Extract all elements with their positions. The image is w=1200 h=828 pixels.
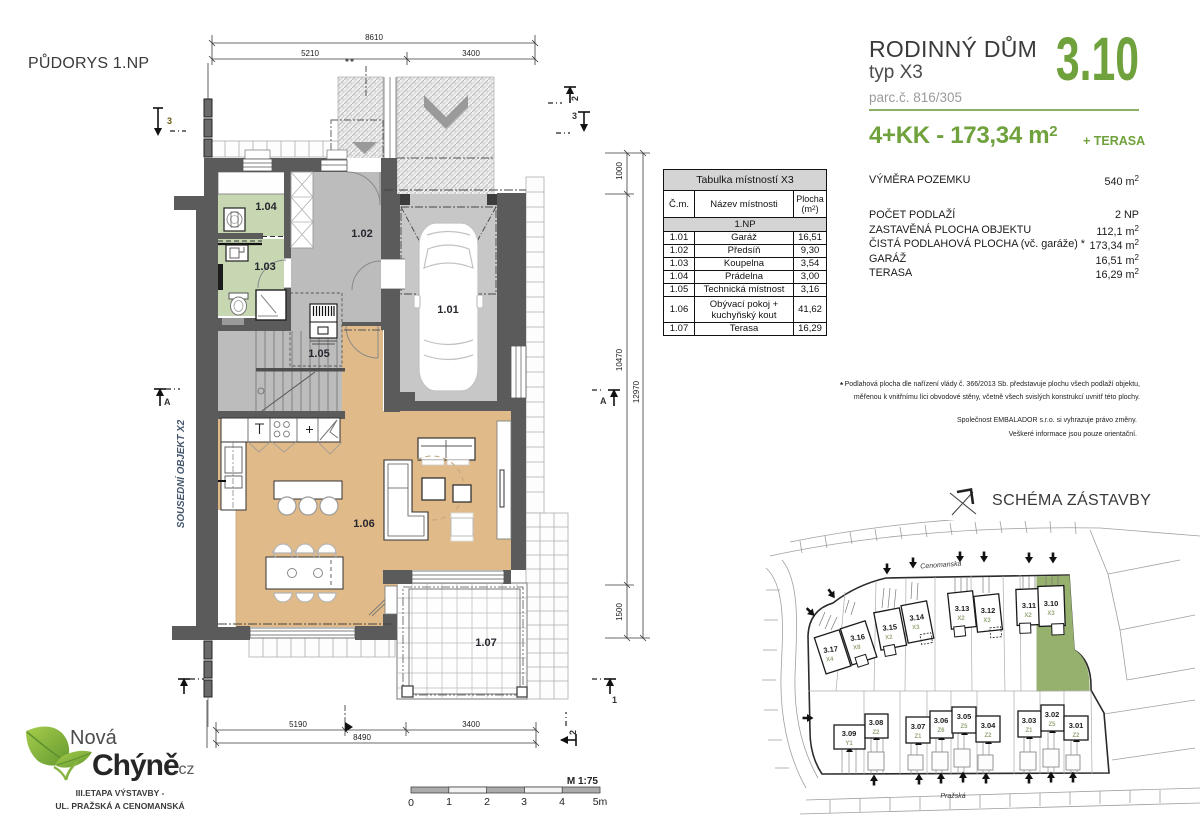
- svg-text:3.02: 3.02: [1045, 710, 1060, 719]
- svg-text:3.09: 3.09: [842, 729, 857, 738]
- svg-text:2: 2: [484, 796, 490, 808]
- svg-text:X2: X2: [1024, 613, 1032, 619]
- svg-text:8490: 8490: [353, 733, 371, 742]
- svg-text:Z2: Z2: [872, 730, 880, 736]
- svg-text:M 1:75: M 1:75: [567, 776, 599, 787]
- svg-text:3: 3: [167, 116, 172, 126]
- svg-text:Z2: Z2: [1072, 733, 1080, 739]
- svg-text:3.07: 3.07: [911, 722, 926, 731]
- svg-text:Z2: Z2: [984, 733, 992, 739]
- svg-text:3.04: 3.04: [981, 721, 996, 730]
- svg-text:SOUSEDNÍ OBJEKT X2: SOUSEDNÍ OBJEKT X2: [176, 419, 187, 528]
- svg-text:3.06: 3.06: [934, 716, 949, 725]
- svg-text:Chýně: Chýně: [92, 749, 179, 782]
- svg-text:1000: 1000: [615, 162, 624, 180]
- svg-text:3.03: 3.03: [1022, 716, 1037, 725]
- svg-text:3.10: 3.10: [1044, 599, 1059, 608]
- svg-text:1: 1: [446, 796, 452, 808]
- svg-text:3: 3: [572, 111, 577, 121]
- svg-text:Z1: Z1: [914, 734, 922, 740]
- svg-text:1.04: 1.04: [255, 201, 277, 213]
- svg-text:X2: X2: [957, 616, 965, 622]
- svg-text:Z5: Z5: [1048, 722, 1056, 728]
- svg-text:3.05: 3.05: [957, 712, 972, 721]
- svg-text:X3: X3: [1047, 611, 1055, 617]
- svg-text:3.12: 3.12: [981, 606, 996, 615]
- svg-text:Z5: Z5: [960, 724, 968, 730]
- svg-text:A: A: [164, 397, 171, 407]
- svg-text:3.14: 3.14: [909, 612, 925, 623]
- svg-text:3.13: 3.13: [955, 604, 970, 613]
- svg-text:Pražská: Pražská: [940, 793, 965, 800]
- svg-text:1.05: 1.05: [308, 348, 329, 360]
- svg-text:2: 2: [570, 96, 580, 101]
- svg-text:5210: 5210: [301, 49, 319, 58]
- svg-text:1.03: 1.03: [254, 261, 275, 273]
- svg-text:8610: 8610: [365, 33, 383, 42]
- svg-text:0: 0: [408, 797, 414, 809]
- svg-text:A: A: [600, 396, 607, 406]
- svg-text:1: 1: [612, 695, 617, 705]
- svg-text:Y1: Y1: [845, 741, 853, 747]
- svg-text:12970: 12970: [632, 380, 641, 403]
- svg-text:10470: 10470: [615, 348, 624, 371]
- svg-text:4: 4: [559, 796, 565, 808]
- svg-text:3400: 3400: [462, 49, 480, 58]
- svg-text:3.08: 3.08: [869, 718, 884, 727]
- svg-text:Nová: Nová: [70, 727, 118, 749]
- svg-text:5m: 5m: [593, 796, 608, 808]
- svg-text:1.07: 1.07: [475, 637, 496, 649]
- svg-text:Z6: Z6: [937, 728, 945, 734]
- svg-text:5190: 5190: [289, 720, 307, 729]
- svg-text:1.02: 1.02: [351, 228, 372, 240]
- svg-text:Z1: Z1: [1025, 728, 1033, 734]
- svg-text:X3: X3: [983, 618, 991, 624]
- svg-text:3.11: 3.11: [1022, 601, 1036, 610]
- svg-text:Cenomanská: Cenomanská: [920, 561, 962, 571]
- svg-text:X3: X3: [912, 625, 921, 632]
- svg-text:X2: X2: [885, 635, 894, 642]
- svg-text:3.15: 3.15: [882, 622, 897, 632]
- svg-text:1.06: 1.06: [353, 518, 374, 530]
- svg-text:1500: 1500: [615, 603, 624, 621]
- svg-text:2: 2: [568, 730, 578, 735]
- svg-text:3.01: 3.01: [1069, 721, 1084, 730]
- svg-text:1.01: 1.01: [437, 304, 458, 316]
- svg-text:3: 3: [521, 796, 527, 808]
- svg-text:3400: 3400: [462, 720, 480, 729]
- svg-text:.cz: .cz: [174, 761, 194, 778]
